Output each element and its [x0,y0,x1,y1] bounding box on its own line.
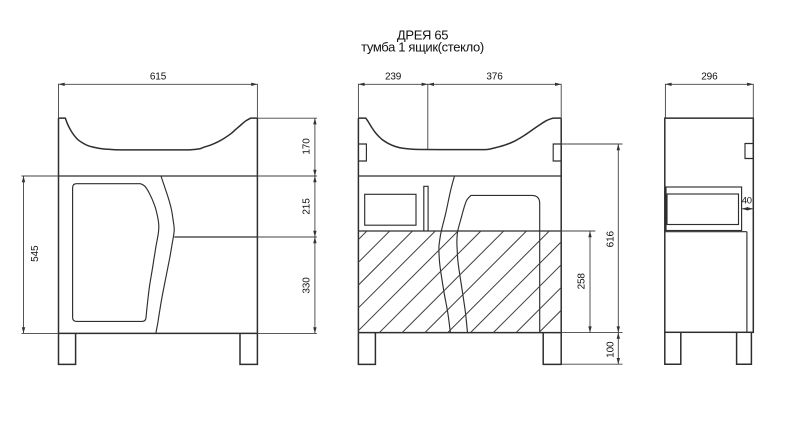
svg-text:545: 545 [30,245,41,262]
svg-text:тумба 1 ящик(стекло): тумба 1 ящик(стекло) [361,40,484,55]
svg-text:40: 40 [742,194,752,205]
svg-text:215: 215 [302,198,313,215]
svg-text:296: 296 [701,71,718,82]
svg-text:239: 239 [385,71,402,82]
svg-text:100: 100 [605,341,616,358]
svg-text:258: 258 [577,273,588,290]
svg-text:376: 376 [486,71,503,82]
svg-text:615: 615 [150,71,167,82]
svg-text:616: 616 [605,231,616,248]
svg-text:170: 170 [302,138,313,155]
svg-text:330: 330 [302,277,313,294]
